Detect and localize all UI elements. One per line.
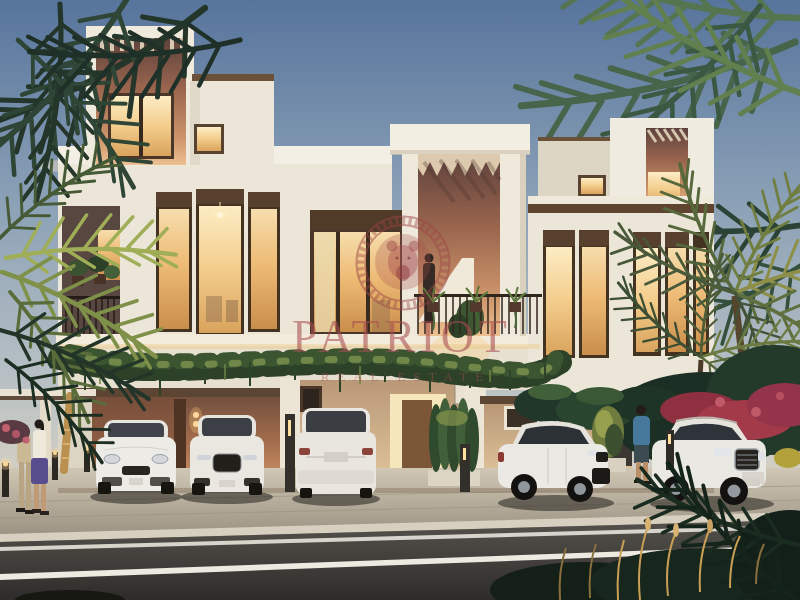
- roof-window-small: [197, 127, 221, 151]
- ground-window-dark: [303, 389, 319, 409]
- triple-window-left: [156, 189, 280, 336]
- white-suv-rear-center: [292, 408, 380, 506]
- watermark-tagline-text: REAL ESTATE: [321, 369, 492, 384]
- real-estate-render: PATRIOT REAL ESTATE: [0, 0, 800, 600]
- roof-trim: [528, 204, 714, 213]
- planter-shrubs-center: [428, 398, 480, 486]
- entrance-door: [402, 400, 432, 470]
- watermark-brand-text: PATRIOT: [292, 311, 512, 362]
- roof-window-right-small: [581, 178, 603, 194]
- scene-canvas: PATRIOT REAL ESTATE: [0, 0, 800, 600]
